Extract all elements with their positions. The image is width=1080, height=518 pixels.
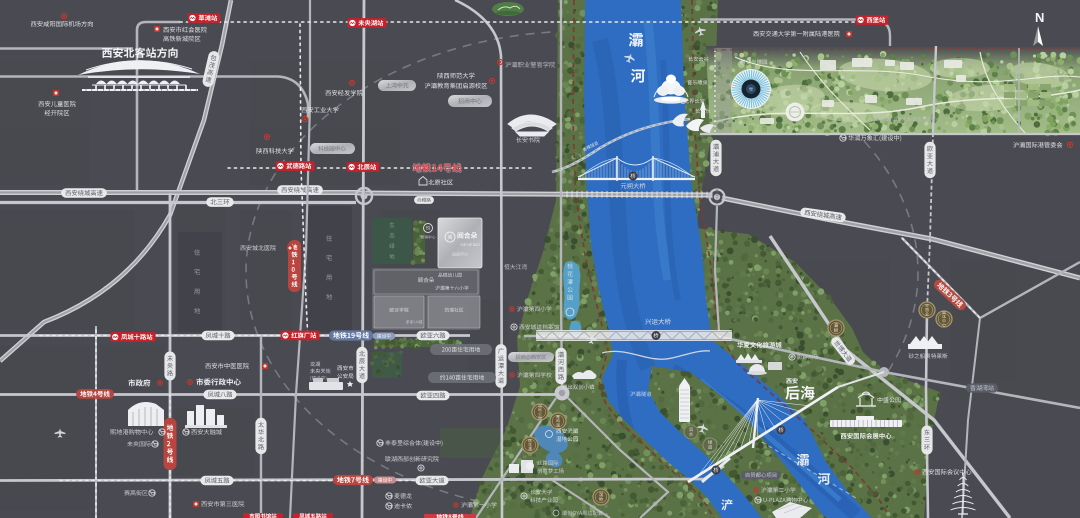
svg-text:YUE HE DUO: YUE HE DUO [460,243,480,247]
svg-text:N: N [1035,10,1044,25]
